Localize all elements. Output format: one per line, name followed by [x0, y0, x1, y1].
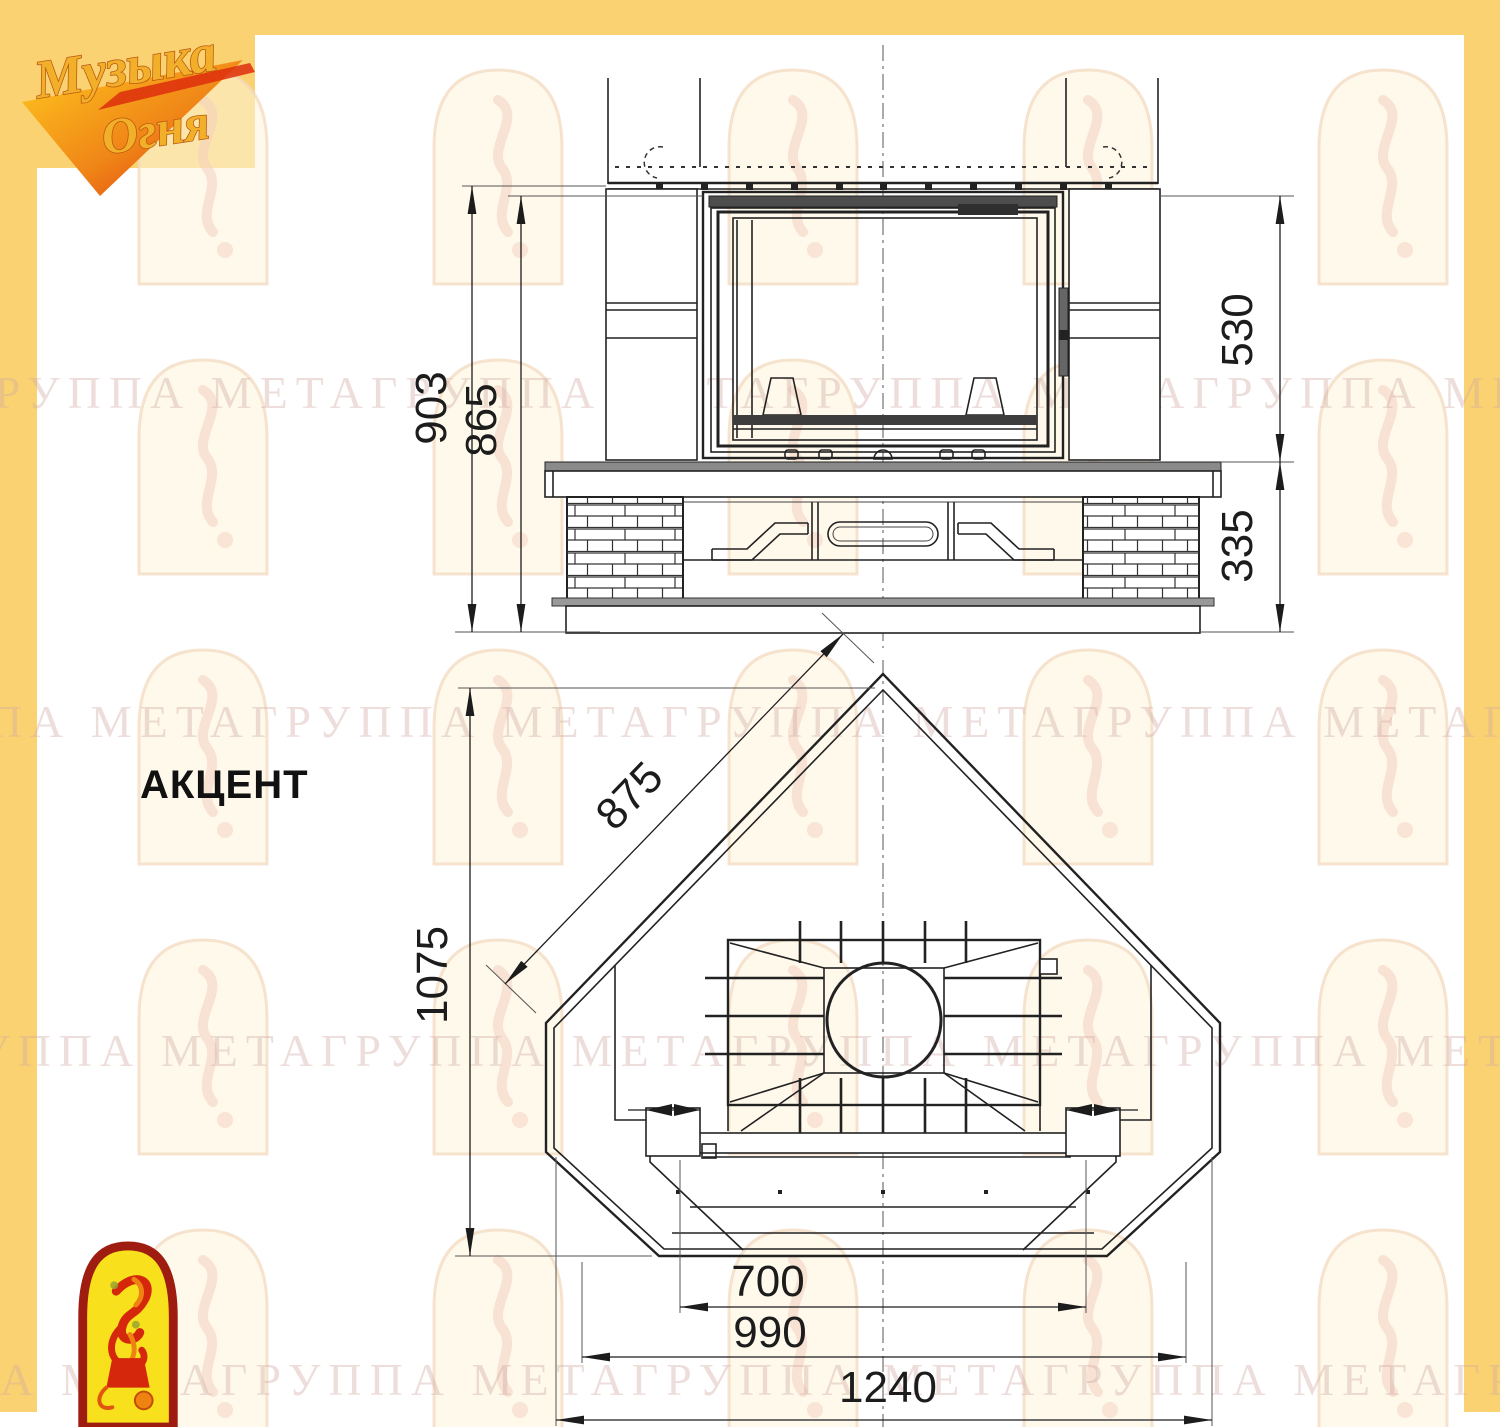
right-brick-pier — [1083, 497, 1199, 600]
left-pilaster — [606, 189, 697, 460]
model-name-label: АКЦЕНТ — [140, 763, 309, 808]
watermark-arch — [1319, 70, 1447, 284]
watermark-arch — [434, 70, 562, 284]
dim-body-height-label: 865 — [457, 383, 506, 456]
dim-firebox-front-width-label: 700 — [731, 1257, 804, 1306]
watermark-arch — [729, 650, 857, 864]
watermark-arch — [729, 70, 857, 284]
dim-base-section-label: 335 — [1213, 509, 1262, 582]
plinth — [552, 598, 1214, 633]
watermark-row: ГРУППА МЕТАГРУППА МЕТАГРУППА МЕТАГРУППА … — [0, 367, 1500, 418]
watermark-row: ГРУППА МЕТАГРУППА МЕТАГРУППА МЕТАГРУППА … — [0, 1354, 1500, 1405]
watermark-arch — [1319, 650, 1447, 864]
watermark-arch — [1024, 650, 1152, 864]
door-bar-plan — [697, 1133, 1077, 1153]
drawing-page: ГРУППА МЕТАГРУППА МЕТАГРУППА МЕТАГРУППА … — [0, 0, 1500, 1427]
company-logo: Музыка Огня — [0, 0, 270, 215]
side-tab — [1040, 959, 1057, 974]
brand-plate — [958, 204, 1018, 215]
hearth-shelf — [545, 462, 1221, 497]
watermark-arch — [139, 650, 267, 864]
watermark-row: ГРУППА МЕТАГРУППА МЕТАГРУППА МЕТАГРУППА … — [0, 696, 1500, 747]
dim-front-width-label: 990 — [733, 1308, 806, 1357]
left-brick-pier — [567, 497, 683, 600]
dim-total-depth-label: 1075 — [408, 926, 457, 1024]
dim-overall-width-label: 1240 — [839, 1363, 937, 1412]
dim-side-edge-label: 875 — [586, 753, 672, 840]
watermark-arch-pattern — [139, 70, 1447, 1427]
watermark-arch — [434, 650, 562, 864]
dim-upper-section-label: 530 — [1213, 293, 1262, 366]
mascot-emblem — [78, 1240, 178, 1427]
right-pilaster — [1069, 189, 1160, 460]
dim-overall-height-label: 903 — [407, 371, 456, 444]
watermark-row: ГРУППА МЕТАГРУППА МЕТАГРУППА МЕТАГРУППА … — [0, 1025, 1500, 1076]
